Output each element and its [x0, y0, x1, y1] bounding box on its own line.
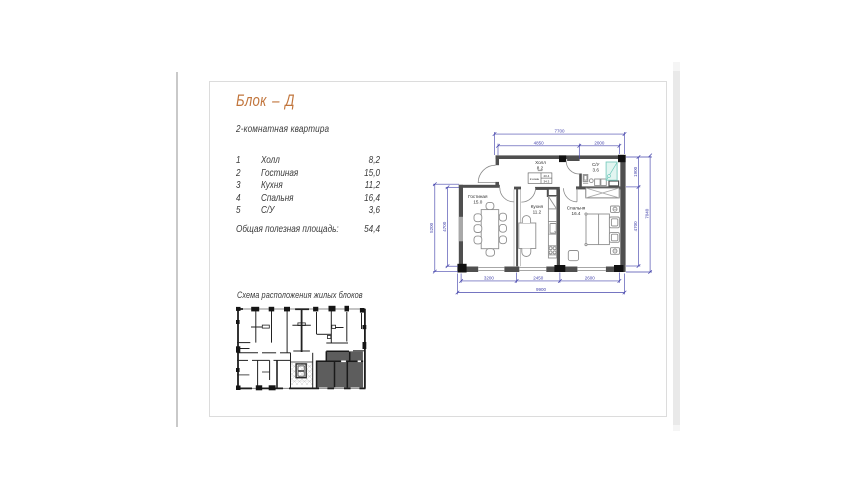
- svg-text:9900: 9900: [536, 287, 547, 292]
- svg-text:Холл: Холл: [535, 160, 546, 165]
- svg-text:11.2: 11.2: [533, 209, 542, 214]
- svg-text:15.0: 15.0: [473, 199, 482, 204]
- svg-text:3200: 3200: [484, 276, 495, 281]
- svg-text:7040: 7040: [645, 208, 650, 219]
- svg-text:34.3: 34.3: [543, 179, 549, 183]
- svg-text:2600: 2600: [585, 276, 596, 281]
- svg-text:1900: 1900: [633, 166, 638, 177]
- svg-text:4850: 4850: [534, 140, 545, 145]
- svg-text:7700: 7700: [554, 129, 565, 134]
- svg-text:5200: 5200: [429, 222, 434, 233]
- svg-text:Спальня: Спальня: [567, 205, 586, 210]
- svg-text:4700: 4700: [633, 221, 638, 232]
- svg-text:Кухня: Кухня: [531, 204, 544, 209]
- svg-text:16.4: 16.4: [572, 211, 581, 216]
- svg-text:2-комн: 2-комн: [530, 177, 540, 181]
- svg-text:С/У: С/У: [592, 162, 600, 167]
- svg-text:4700: 4700: [442, 221, 447, 232]
- svg-text:2450: 2450: [533, 276, 544, 281]
- svg-text:3.6: 3.6: [593, 168, 600, 173]
- svg-text:8.2: 8.2: [537, 165, 544, 170]
- svg-text:2000: 2000: [594, 140, 605, 145]
- svg-text:20.4: 20.4: [543, 174, 549, 178]
- svg-text:Гостиная: Гостиная: [468, 194, 488, 199]
